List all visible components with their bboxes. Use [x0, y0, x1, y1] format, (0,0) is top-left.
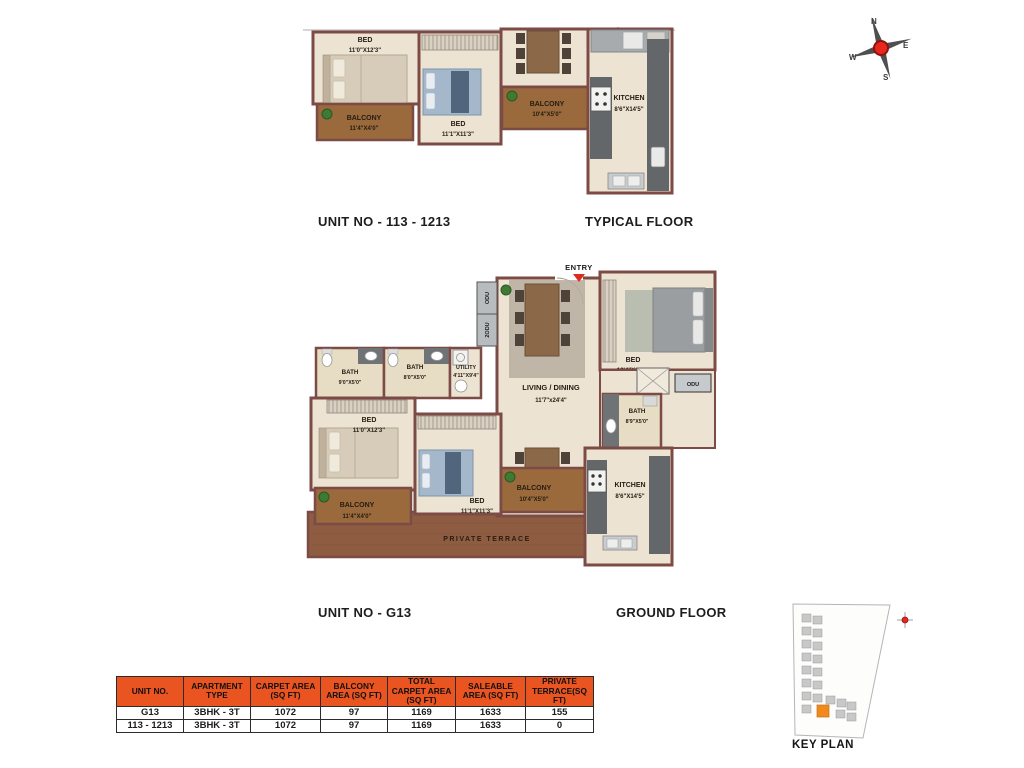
compass-center: [874, 41, 888, 55]
dining-table-icon: [525, 284, 559, 356]
room-label: BED: [362, 417, 377, 424]
room-bed1: BED 11'0"X12'3": [313, 32, 419, 104]
room-label: KITCHEN: [613, 95, 644, 102]
room-balcony2: BALCONY 10'4"X5'0": [501, 468, 593, 512]
brochure-page: BED 11'0"X12'3" BALCONY 11'4"X4'0" BED 1…: [0, 0, 1024, 768]
shaft: [637, 368, 669, 394]
bed-icon: [419, 450, 473, 496]
cell-balcony-area: 97: [321, 719, 388, 732]
cell-total-carpet-area: 1169: [388, 706, 456, 719]
cell-unit-no: 113 - 1213: [117, 719, 184, 732]
room-label: BALCONY: [517, 485, 552, 492]
sink-icon: [603, 536, 637, 550]
room-bath1: BATH 9'0"X5'0": [316, 348, 384, 398]
room-balcony2: BALCONY 10'4"X5'0": [502, 87, 592, 129]
room-bed2: BED 11'1"X11'3": [419, 32, 501, 144]
room-label: BATH: [342, 369, 359, 376]
room-bed1: BED 11'0"X12'3": [311, 398, 415, 490]
compass-w: W: [849, 53, 857, 62]
odu-label: ODU: [485, 292, 491, 304]
compass-e: E: [903, 41, 909, 50]
room-label: BALCONY: [530, 101, 565, 108]
cell-private-terrace: 0: [526, 719, 594, 732]
entry-label: ENTRY: [565, 263, 593, 272]
room-dims: 11'1"X11'3": [442, 132, 474, 138]
wardrobe-icon: [418, 416, 496, 429]
room-utility: UTILITY 4'11"X9'4": [450, 348, 481, 398]
table-header-row: UNIT NO. APARTMENT TYPE CARPET AREA (SQ …: [117, 677, 594, 707]
kitchen-counter: [647, 39, 669, 191]
room-label: LIVING / DINING: [522, 383, 580, 392]
room-label: BED: [358, 37, 373, 44]
plant-icon: [507, 91, 517, 101]
room-dims: 11'4"X4'0": [350, 126, 379, 132]
stove-icon: [588, 470, 606, 492]
room-kitchen: KITCHEN 8'6"X14'5": [585, 448, 672, 565]
bed-icon: [319, 428, 398, 478]
table-row: 113 - 1213 3BHK - 3T 1072 97 1169 1633 0: [117, 719, 594, 732]
toilet-icon: [606, 419, 616, 433]
col-header-apartment-type: APARTMENT TYPE: [184, 677, 251, 707]
compass-rose: N E W S: [838, 8, 924, 92]
room-balcony1: BALCONY 11'4"X4'0": [315, 488, 411, 524]
dining-area: [501, 29, 588, 87]
room-label: BALCONY: [340, 502, 375, 509]
sink-icon: [431, 352, 443, 361]
col-header-total-carpet-area: TOTAL CARPET AREA (SQ FT): [388, 677, 456, 707]
sink-icon: [365, 352, 377, 361]
col-header-saleable-area: SALEABLE AREA (SQ FT): [456, 677, 526, 707]
bed-icon: [323, 55, 407, 103]
stove-icon: [591, 87, 611, 111]
kitchen-counter: [649, 456, 670, 554]
washer-icon: [453, 350, 468, 365]
toilet-icon: [322, 354, 332, 367]
room-dims: 10'4"X5'0": [519, 497, 548, 503]
col-header-unit-no: UNIT NO.: [117, 677, 184, 707]
room-label: BATH: [407, 364, 424, 371]
room-dims: 8'9"X5'0": [626, 419, 649, 425]
plant-icon: [319, 492, 329, 502]
bed-icon: [653, 288, 713, 352]
odu-right: ODU: [675, 374, 711, 392]
room-dims: 10'4"X5'0": [532, 112, 561, 118]
cell-balcony-area: 97: [321, 706, 388, 719]
mini-compass-icon: [897, 612, 913, 628]
odu-label: ODU: [687, 382, 699, 388]
room-dims: 4'11"X9'4": [453, 373, 479, 379]
cell-saleable-area: 1633: [456, 719, 526, 732]
room-bath2: BATH 8'0"X5'0": [384, 348, 450, 398]
ground-floor-plan: PRIVATE TERRACE LIVING / DINING 11'7"x24…: [303, 262, 718, 567]
key-plan: KEY PLAN: [780, 596, 950, 756]
room-dims: 11'4"X4'0": [343, 514, 372, 520]
geyser-icon: [455, 380, 467, 392]
sink-icon: [643, 396, 657, 406]
wardrobe-icon: [603, 280, 616, 362]
col-header-private-terrace: PRIVATE TERRACE(SQ FT): [526, 677, 594, 707]
room-label: UTILITY: [456, 365, 476, 371]
cell-apartment-type: 3BHK - 3T: [184, 719, 251, 732]
highlighted-building: [817, 705, 829, 717]
ground-plan-title: UNIT NO - G13: [318, 605, 411, 620]
room-dims: 8'6"X14'5": [615, 494, 644, 500]
odu-label: 2ODU: [485, 322, 491, 337]
wardrobe-icon: [422, 35, 498, 50]
cell-total-carpet-area: 1169: [388, 719, 456, 732]
room-bath3: BATH 8'9"X5'0": [603, 394, 661, 448]
room-label: BATH: [629, 408, 646, 415]
room-balcony1: BALCONY 11'4"X4'0": [317, 104, 413, 140]
wardrobe-icon: [327, 400, 407, 413]
cell-carpet-area: 1072: [251, 719, 321, 732]
cell-private-terrace: 155: [526, 706, 594, 719]
room-label: PRIVATE TERRACE: [443, 536, 531, 543]
room-dims: 8'0"X5'0": [404, 375, 427, 381]
room-label: BED: [451, 121, 466, 128]
col-header-balcony-area: BALCONY AREA (SQ FT): [321, 677, 388, 707]
table-row: G13 3BHK - 3T 1072 97 1169 1633 155: [117, 706, 594, 719]
key-plan-label: KEY PLAN: [792, 739, 854, 751]
odu-units: ODU 2ODU: [477, 282, 497, 346]
room-dims: 11'0"X12'3": [349, 48, 381, 54]
room-label: BED: [470, 498, 485, 505]
col-header-carpet-area: CARPET AREA (SQ FT): [251, 677, 321, 707]
room-dims: 11'7"x24'4": [535, 398, 567, 404]
room-dims: 11'0"X12'3": [353, 428, 385, 434]
room-dims: 9'0"X5'0": [339, 380, 362, 386]
compass-n: N: [871, 17, 877, 26]
room-label: KITCHEN: [614, 482, 645, 489]
toilet-icon: [388, 354, 398, 367]
room-label: BED: [626, 357, 641, 364]
room-bed3: BED 13'4"X11'3": [600, 272, 715, 374]
area-statement-table: UNIT NO. APARTMENT TYPE CARPET AREA (SQ …: [116, 676, 594, 733]
cell-apartment-type: 3BHK - 3T: [184, 706, 251, 719]
cell-carpet-area: 1072: [251, 706, 321, 719]
room-label: BALCONY: [347, 115, 382, 122]
plant-icon: [505, 472, 515, 482]
ground-plan-floor-label: GROUND FLOOR: [616, 605, 726, 620]
plant-icon: [501, 285, 511, 295]
cell-unit-no: G13: [117, 706, 184, 719]
typical-plan-title: UNIT NO - 113 - 1213: [318, 214, 450, 229]
bed-icon: [423, 69, 481, 115]
room-dims: 8'6"X14'5": [614, 107, 643, 113]
cell-saleable-area: 1633: [456, 706, 526, 719]
compass-s: S: [883, 73, 889, 82]
room-kitchen: KITCHEN 8'6"X14'5": [588, 29, 672, 193]
sink-icon: [608, 173, 644, 189]
room-bed2: BED 11'1"X11'3": [415, 414, 501, 515]
room-dims: 11'1"X11'3": [461, 509, 493, 515]
typical-plan-floor-label: TYPICAL FLOOR: [585, 214, 693, 229]
dining-table-icon: [527, 31, 559, 73]
typical-floor-plan: BED 11'0"X12'3" BALCONY 11'4"X4'0" BED 1…: [303, 27, 675, 202]
plant-icon: [322, 109, 332, 119]
